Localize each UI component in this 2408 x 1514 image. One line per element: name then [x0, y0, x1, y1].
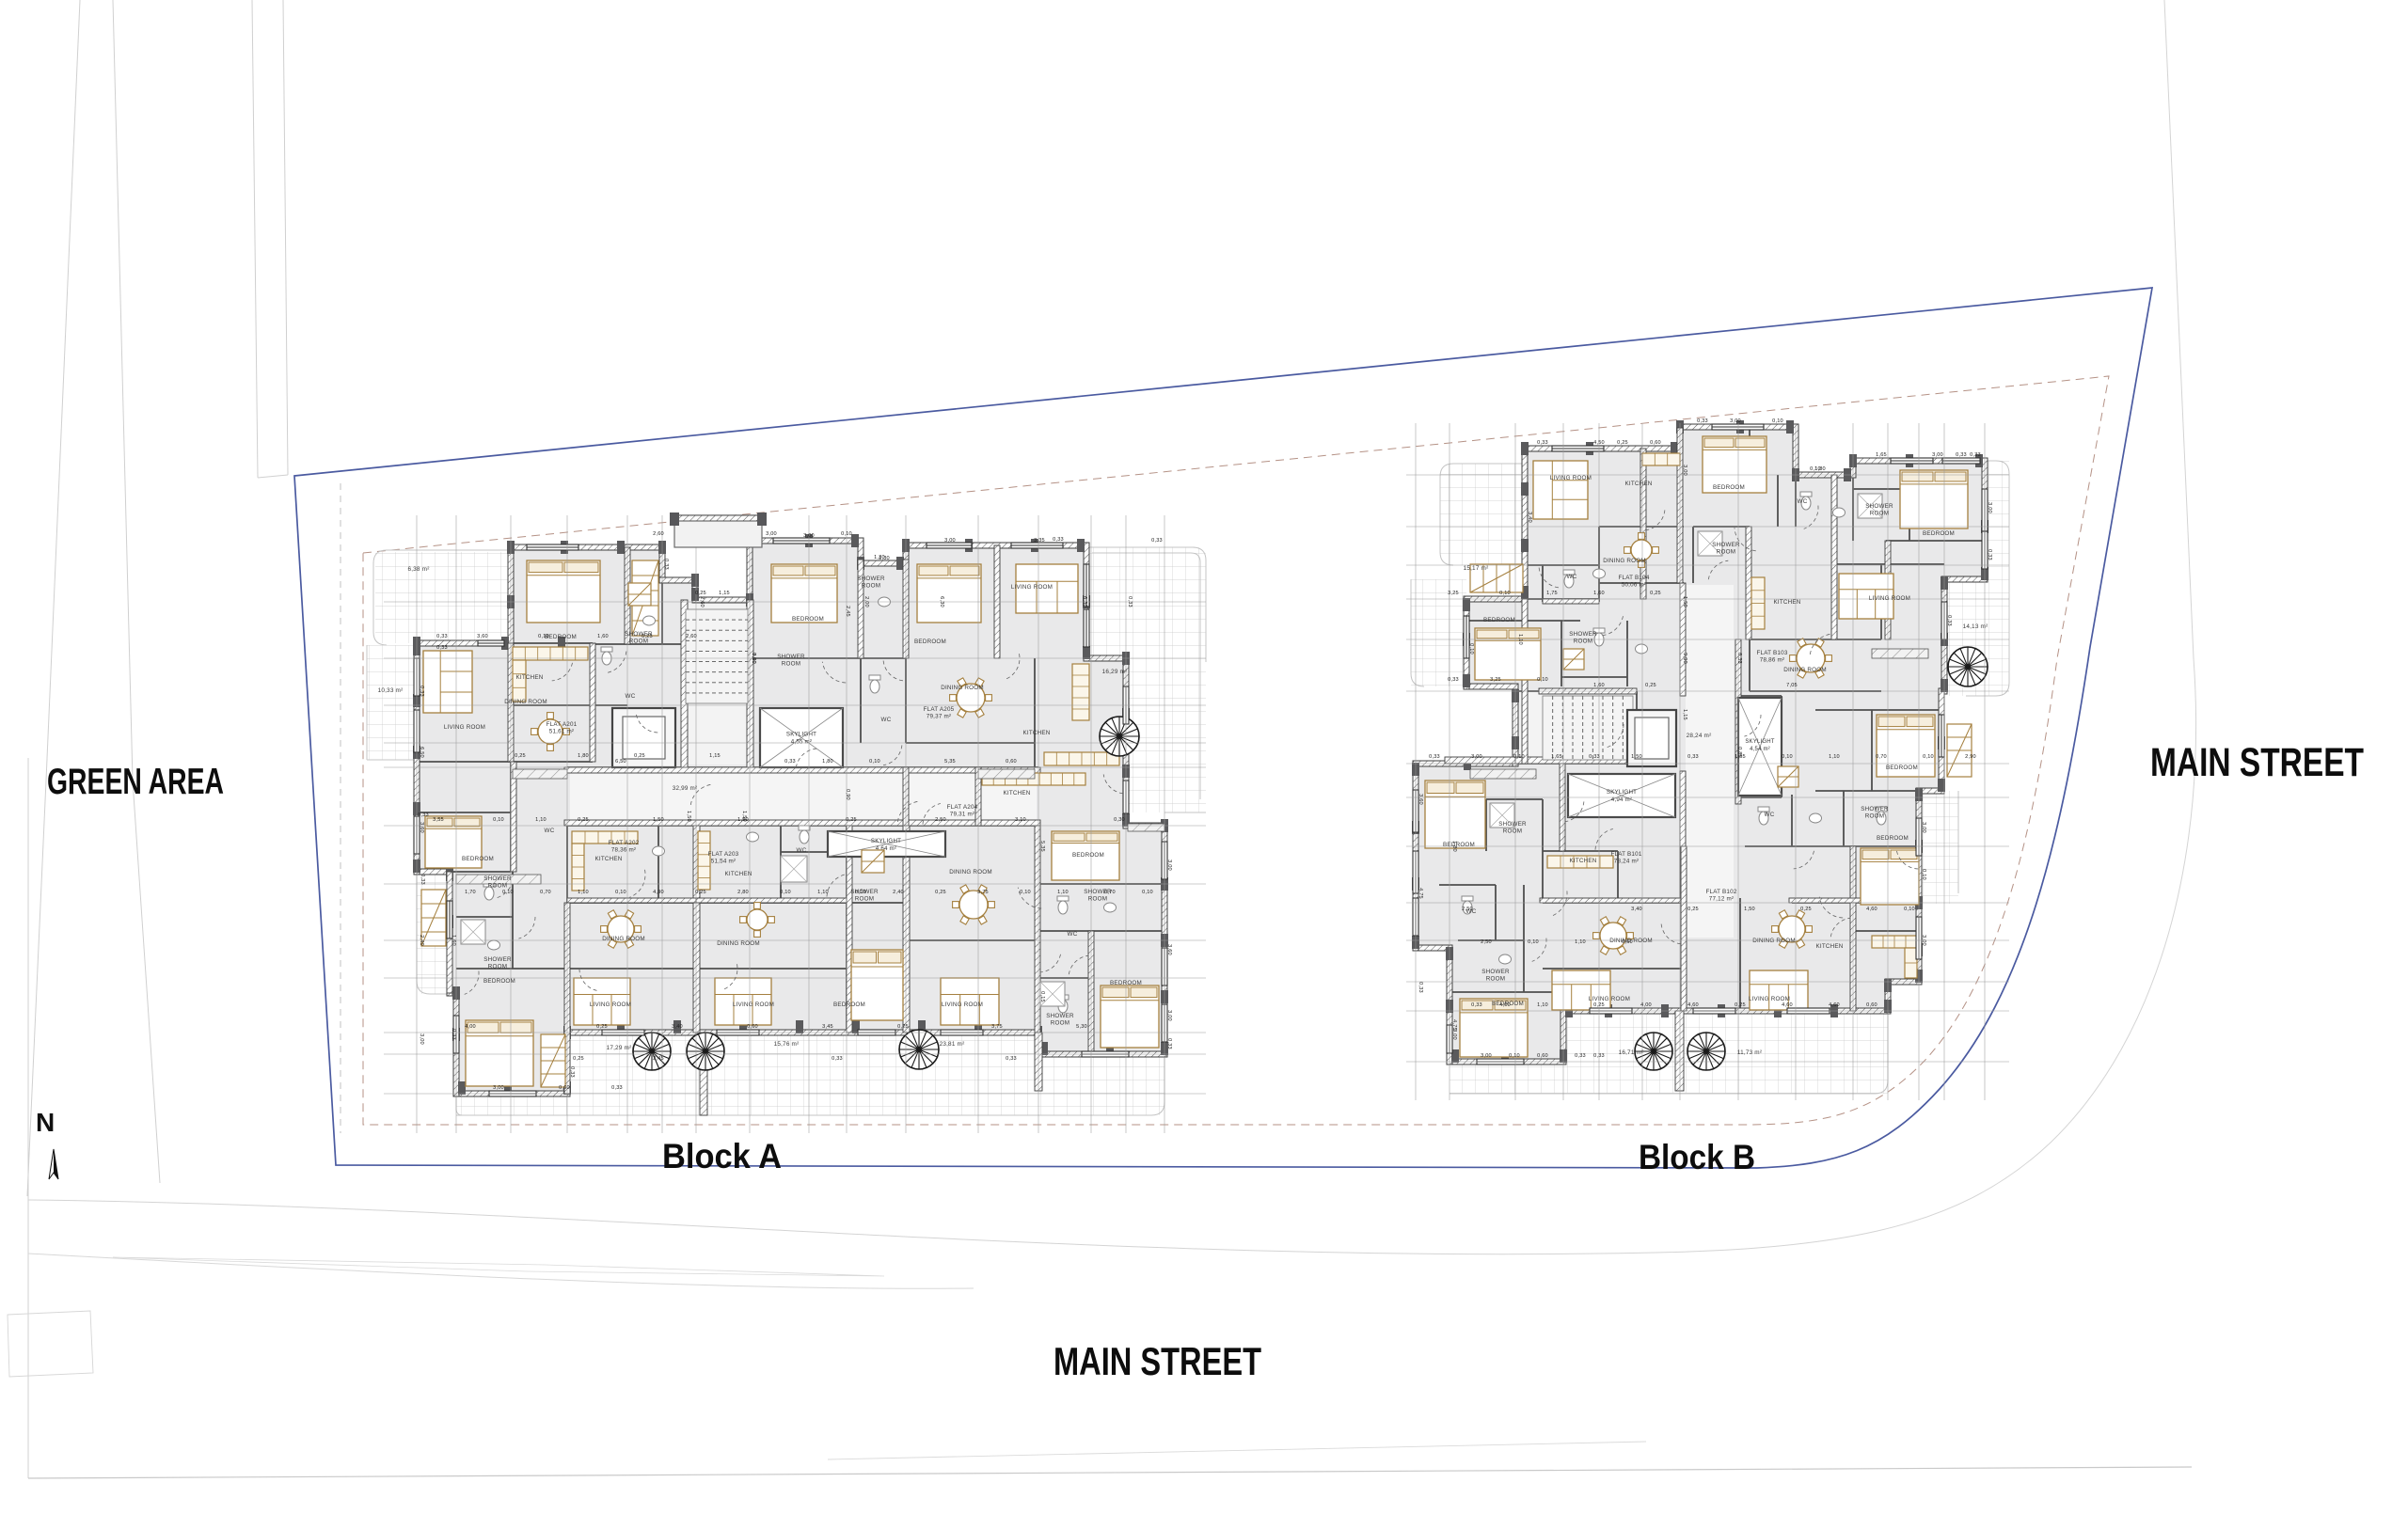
svg-text:0,10: 0,10 — [1468, 643, 1474, 654]
svg-text:0,25: 0,25 — [634, 753, 645, 759]
svg-text:6,50: 6,50 — [419, 747, 424, 758]
svg-text:DINING ROOM: DINING ROOM — [1752, 938, 1796, 944]
svg-text:0,33: 0,33 — [1151, 538, 1163, 544]
svg-text:79,37 m²: 79,37 m² — [927, 714, 951, 720]
svg-text:WC: WC — [1765, 812, 1775, 818]
svg-text:0,10: 0,10 — [1513, 754, 1525, 760]
svg-text:KITCHEN: KITCHEN — [1003, 790, 1030, 796]
svg-text:1,10: 1,10 — [1537, 1002, 1548, 1008]
svg-text:DINING ROOM: DINING ROOM — [1603, 558, 1646, 564]
svg-text:28,24 m²: 28,24 m² — [1687, 733, 1712, 739]
svg-text:KITCHEN: KITCHEN — [724, 871, 752, 877]
svg-text:LIVING ROOM: LIVING ROOM — [733, 1001, 774, 1008]
svg-text:LIVING ROOM: LIVING ROOM — [1749, 996, 1790, 1002]
svg-text:3,10: 3,10 — [1015, 817, 1026, 823]
svg-text:SHOWER: SHOWER — [777, 654, 805, 660]
svg-text:0,25: 0,25 — [573, 1056, 584, 1062]
svg-text:SHOWER: SHOWER — [857, 576, 885, 582]
svg-text:3,00: 3,00 — [1451, 1029, 1457, 1040]
svg-text:3,00: 3,00 — [803, 533, 815, 539]
svg-text:BEDROOM: BEDROOM — [1877, 835, 1909, 842]
svg-text:17,29 m²: 17,29 m² — [607, 1045, 632, 1051]
svg-text:1,50: 1,50 — [741, 811, 747, 822]
svg-text:0,33: 0,33 — [569, 1066, 575, 1078]
svg-text:DINING ROOM: DINING ROOM — [504, 699, 547, 705]
svg-text:KITCHEN: KITCHEN — [1773, 599, 1800, 606]
svg-text:ROOM: ROOM — [862, 583, 880, 590]
svg-text:0,25: 0,25 — [1593, 1002, 1605, 1008]
svg-text:1,50: 1,50 — [1682, 596, 1687, 607]
svg-text:0,33: 0,33 — [663, 559, 669, 570]
svg-text:4,60: 4,60 — [1829, 1002, 1840, 1008]
svg-text:BEDROOM: BEDROOM — [1110, 980, 1142, 986]
svg-text:0,10: 0,10 — [855, 890, 866, 895]
svg-text:0,33: 0,33 — [1166, 1038, 1172, 1049]
svg-text:2,60: 2,60 — [699, 596, 705, 607]
svg-text:ROOM: ROOM — [1088, 896, 1107, 903]
svg-text:LIVING ROOM: LIVING ROOM — [1550, 475, 1592, 481]
svg-text:5,30: 5,30 — [1076, 1024, 1087, 1030]
svg-text:0,10: 0,10 — [615, 890, 626, 895]
svg-text:Block A: Block A — [662, 1137, 782, 1175]
svg-text:SHOWER: SHOWER — [1569, 631, 1597, 638]
svg-text:0,60: 0,60 — [1537, 1053, 1548, 1059]
svg-text:2,40: 2,40 — [893, 890, 904, 895]
svg-text:2,80: 2,80 — [737, 890, 749, 895]
svg-text:3,00: 3,00 — [1921, 822, 1926, 833]
svg-text:2,40: 2,40 — [419, 935, 424, 946]
svg-text:0,25: 0,25 — [515, 753, 526, 759]
svg-text:6,30: 6,30 — [1082, 596, 1087, 607]
svg-text:3,40: 3,40 — [1631, 907, 1642, 912]
svg-text:0,70: 0,70 — [1876, 754, 1887, 760]
svg-text:BEDROOM: BEDROOM — [483, 978, 515, 985]
svg-text:11,73 m²: 11,73 m² — [1737, 1049, 1762, 1056]
svg-text:78,36 m²: 78,36 m² — [611, 847, 636, 854]
svg-text:4,90: 4,90 — [653, 890, 664, 895]
svg-text:1,70: 1,70 — [465, 890, 476, 895]
svg-text:2,50: 2,50 — [1462, 907, 1473, 912]
svg-text:0,33: 0,33 — [1697, 418, 1708, 424]
svg-text:SHOWER: SHOWER — [1046, 1013, 1074, 1019]
svg-text:51,61 m²: 51,61 m² — [549, 729, 574, 735]
svg-text:78,24 m²: 78,24 m² — [1614, 859, 1639, 865]
svg-text:SHOWER: SHOWER — [1481, 969, 1510, 975]
svg-text:2,00: 2,00 — [863, 596, 869, 607]
svg-text:0,33: 0,33 — [1987, 549, 1992, 560]
svg-text:3,60: 3,60 — [1418, 794, 1423, 805]
svg-text:0,10: 0,10 — [1509, 1053, 1520, 1059]
svg-text:MAIN STREET: MAIN STREET — [1053, 1339, 1261, 1383]
svg-text:MAIN STREET: MAIN STREET — [2150, 740, 2364, 785]
svg-text:WC: WC — [1798, 498, 1808, 505]
svg-text:FLAT B103: FLAT B103 — [1756, 650, 1787, 656]
svg-text:0,10: 0,10 — [841, 531, 852, 537]
svg-text:DINING ROOM: DINING ROOM — [941, 685, 984, 691]
svg-text:4,60: 4,60 — [1687, 1002, 1699, 1008]
svg-text:LIVING ROOM: LIVING ROOM — [1869, 595, 1910, 602]
svg-text:0,25: 0,25 — [1650, 591, 1661, 596]
svg-text:ROOM: ROOM — [1051, 1020, 1069, 1027]
svg-text:0,33: 0,33 — [436, 645, 448, 651]
svg-text:LIVING ROOM: LIVING ROOM — [1011, 584, 1053, 591]
svg-text:4,00: 4,00 — [465, 1024, 476, 1030]
svg-text:0,10: 0,10 — [1020, 890, 1031, 895]
svg-text:1,10: 1,10 — [578, 890, 589, 895]
svg-text:1,15: 1,15 — [1682, 709, 1687, 720]
svg-text:WC: WC — [881, 717, 892, 723]
svg-text:1,75: 1,75 — [1546, 591, 1558, 596]
svg-text:ROOM: ROOM — [855, 896, 874, 903]
svg-text:0,10: 0,10 — [869, 759, 880, 765]
svg-text:2,60: 2,60 — [653, 531, 664, 537]
svg-text:3,00: 3,00 — [1921, 935, 1926, 946]
svg-text:0,10: 0,10 — [1810, 466, 1821, 472]
svg-text:79,31 m²: 79,31 m² — [950, 812, 974, 818]
svg-text:ROOM: ROOM — [488, 883, 507, 890]
svg-text:0,33: 0,33 — [611, 1085, 623, 1091]
svg-text:1,80: 1,80 — [578, 753, 589, 759]
svg-text:4,00: 4,00 — [1640, 1002, 1652, 1008]
svg-text:SHOWER: SHOWER — [483, 875, 512, 882]
svg-text:4,50: 4,50 — [1593, 440, 1605, 446]
svg-text:3,00: 3,00 — [1481, 1053, 1492, 1059]
svg-text:0,25: 0,25 — [695, 890, 706, 895]
svg-text:3,45: 3,45 — [822, 1024, 833, 1030]
svg-text:ROOM: ROOM — [1503, 828, 1522, 835]
svg-text:3,40: 3,40 — [1527, 512, 1532, 523]
svg-text:0,25: 0,25 — [578, 817, 589, 823]
svg-text:0,33: 0,33 — [451, 1029, 456, 1040]
svg-text:0,60: 0,60 — [1650, 440, 1661, 446]
svg-text:1,10: 1,10 — [1575, 939, 1586, 945]
svg-text:2,45: 2,45 — [653, 1056, 664, 1062]
svg-text:LIVING ROOM: LIVING ROOM — [444, 724, 485, 731]
svg-text:3,00: 3,00 — [1730, 418, 1741, 424]
svg-text:1,50: 1,50 — [653, 817, 664, 823]
svg-text:BEDROOM: BEDROOM — [1072, 852, 1104, 859]
svg-text:ROOM: ROOM — [1870, 511, 1889, 517]
svg-text:0,33: 0,33 — [1589, 754, 1600, 760]
svg-text:1,60: 1,60 — [1593, 591, 1605, 596]
svg-text:SHOWER: SHOWER — [1712, 542, 1740, 548]
svg-text:1,10: 1,10 — [1829, 754, 1840, 760]
svg-text:10,33 m²: 10,33 m² — [378, 687, 404, 694]
svg-text:0,10: 0,10 — [493, 817, 504, 823]
svg-text:16,71 m²: 16,71 m² — [1619, 1049, 1644, 1056]
svg-text:4,54 m²: 4,54 m² — [1750, 747, 1770, 752]
svg-text:0,30: 0,30 — [1114, 817, 1125, 823]
svg-text:FLAT A201: FLAT A201 — [547, 721, 578, 728]
svg-text:9,90: 9,90 — [1682, 653, 1687, 664]
svg-text:51,54 m²: 51,54 m² — [711, 859, 736, 865]
svg-text:0,10: 0,10 — [1528, 939, 1539, 945]
svg-text:0,33: 0,33 — [1537, 440, 1548, 446]
svg-text:6,38 m²: 6,38 m² — [407, 566, 429, 573]
svg-text:1,10: 1,10 — [817, 890, 829, 895]
svg-text:SHOWER: SHOWER — [1861, 806, 1889, 812]
svg-text:0,25: 0,25 — [935, 890, 946, 895]
svg-text:1,65: 1,65 — [1876, 452, 1887, 458]
svg-text:1,15: 1,15 — [719, 591, 730, 596]
svg-text:0,10: 0,10 — [1772, 418, 1783, 424]
svg-text:ROOM: ROOM — [1574, 639, 1592, 645]
svg-text:LIVING ROOM: LIVING ROOM — [942, 1001, 983, 1008]
svg-text:KITCHEN: KITCHEN — [1569, 858, 1596, 864]
svg-text:0,33: 0,33 — [1471, 1002, 1482, 1008]
svg-text:0,33: 0,33 — [1956, 452, 1967, 458]
svg-text:SHOWER: SHOWER — [1865, 503, 1893, 510]
svg-text:0,85: 0,85 — [1736, 747, 1742, 758]
svg-text:3,75: 3,75 — [991, 1024, 1003, 1030]
svg-text:1,80: 1,80 — [822, 759, 833, 765]
svg-text:BEDROOM: BEDROOM — [462, 856, 494, 862]
svg-text:3,60: 3,60 — [419, 822, 424, 833]
svg-text:0,60: 0,60 — [559, 1085, 570, 1091]
svg-text:0,25: 0,25 — [897, 1024, 909, 1030]
svg-text:4,00: 4,00 — [1499, 1002, 1511, 1008]
svg-text:1,50: 1,50 — [1744, 907, 1755, 912]
svg-text:3,25: 3,25 — [1490, 677, 1501, 683]
svg-text:Block B: Block B — [1639, 1138, 1755, 1176]
svg-text:0,60: 0,60 — [747, 1024, 758, 1030]
svg-text:0,15: 0,15 — [1039, 991, 1045, 1002]
svg-text:BEDROOM: BEDROOM — [792, 616, 824, 623]
svg-text:SKYLIGHT: SKYLIGHT — [871, 838, 901, 844]
svg-text:0,33: 0,33 — [784, 759, 796, 765]
svg-text:0,10: 0,10 — [1921, 869, 1926, 880]
svg-text:0,10: 0,10 — [1142, 890, 1153, 895]
svg-text:0,33: 0,33 — [418, 812, 429, 818]
svg-text:78,86 m²: 78,86 m² — [1760, 657, 1784, 664]
svg-text:0,60: 0,60 — [1866, 1002, 1877, 1008]
svg-text:0,33: 0,33 — [1593, 1053, 1605, 1059]
svg-text:2,50: 2,50 — [1481, 939, 1492, 945]
svg-text:2,50: 2,50 — [935, 817, 946, 823]
svg-text:23,81 m²: 23,81 m² — [940, 1041, 965, 1048]
svg-text:WC: WC — [1068, 931, 1078, 938]
svg-text:BEDROOM: BEDROOM — [1923, 530, 1955, 537]
svg-text:0,60: 0,60 — [1006, 759, 1017, 765]
svg-text:77,12 m²: 77,12 m² — [1709, 896, 1734, 903]
svg-text:0,10: 0,10 — [1782, 754, 1793, 760]
svg-text:0,33: 0,33 — [1429, 754, 1440, 760]
svg-text:3,00: 3,00 — [1471, 754, 1482, 760]
svg-text:5,35: 5,35 — [1039, 841, 1045, 852]
svg-text:KITCHEN: KITCHEN — [1022, 730, 1050, 736]
svg-text:BEDROOM: BEDROOM — [1483, 617, 1515, 623]
svg-text:FLAT B104: FLAT B104 — [1618, 575, 1649, 581]
svg-text:0,10: 0,10 — [538, 634, 549, 639]
svg-text:FLAT B102: FLAT B102 — [1705, 889, 1736, 895]
svg-text:SKYLIGHT: SKYLIGHT — [1745, 739, 1774, 745]
svg-text:1,10: 1,10 — [1057, 890, 1069, 895]
svg-text:WC: WC — [545, 828, 555, 834]
svg-text:WC: WC — [1567, 574, 1577, 580]
svg-text:BEDROOM: BEDROOM — [914, 639, 946, 645]
svg-text:0,33: 0,33 — [1006, 1056, 1017, 1062]
svg-text:BEDROOM: BEDROOM — [1713, 484, 1745, 491]
svg-text:3,00: 3,00 — [944, 538, 956, 544]
svg-text:DINING ROOM: DINING ROOM — [717, 940, 760, 947]
svg-text:0,25: 0,25 — [695, 591, 706, 596]
svg-text:3,00: 3,00 — [1932, 452, 1943, 458]
svg-text:3,55: 3,55 — [433, 817, 444, 823]
svg-text:0,25: 0,25 — [1687, 907, 1699, 912]
svg-text:DINING ROOM: DINING ROOM — [949, 869, 992, 875]
svg-text:3,00: 3,00 — [1166, 860, 1172, 871]
svg-text:N: N — [36, 1108, 55, 1137]
svg-text:32,99 m²: 32,99 m² — [673, 785, 697, 792]
svg-text:3,35: 3,35 — [1034, 538, 1045, 544]
svg-text:4,60: 4,60 — [1866, 907, 1877, 912]
svg-text:SHOWER: SHOWER — [1498, 821, 1527, 828]
svg-text:50,06 m²: 50,06 m² — [1622, 582, 1646, 589]
svg-text:0,25: 0,25 — [642, 634, 653, 639]
svg-text:0,90: 0,90 — [845, 789, 850, 800]
svg-text:1,10: 1,10 — [535, 817, 547, 823]
svg-text:0,33: 0,33 — [436, 634, 448, 639]
svg-text:0,25: 0,25 — [1645, 683, 1656, 688]
svg-text:5,35: 5,35 — [944, 759, 956, 765]
svg-text:3,00: 3,00 — [493, 1085, 504, 1091]
svg-text:ROOM: ROOM — [1865, 813, 1884, 820]
svg-text:1,30: 1,30 — [874, 555, 885, 560]
svg-text:FLAT A205: FLAT A205 — [924, 706, 955, 713]
svg-text:FLAT A202: FLAT A202 — [609, 840, 640, 846]
svg-text:0,60: 0,60 — [1622, 939, 1633, 945]
svg-text:KITCHEN: KITCHEN — [594, 856, 622, 862]
svg-text:15,17 m²: 15,17 m² — [1464, 565, 1489, 572]
svg-text:1,15: 1,15 — [709, 753, 721, 759]
svg-text:6,30: 6,30 — [939, 596, 944, 607]
svg-text:3,00: 3,00 — [1987, 502, 1992, 513]
svg-text:0,25: 0,25 — [846, 817, 857, 823]
svg-text:3,00: 3,00 — [766, 531, 777, 537]
svg-text:0,10: 0,10 — [1537, 677, 1548, 683]
svg-text:KITCHEN: KITCHEN — [1624, 481, 1652, 487]
svg-text:0,33: 0,33 — [1053, 537, 1064, 543]
svg-text:1,10: 1,10 — [1517, 634, 1523, 645]
svg-text:3,25: 3,25 — [1448, 591, 1459, 596]
svg-text:1,60: 1,60 — [451, 935, 456, 946]
svg-text:1,80: 1,80 — [1451, 841, 1457, 852]
svg-text:0,25: 0,25 — [1735, 1002, 1746, 1008]
svg-text:4,75: 4,75 — [1451, 1019, 1457, 1031]
svg-text:KITCHEN: KITCHEN — [1815, 943, 1843, 950]
svg-text:2,60: 2,60 — [686, 634, 697, 639]
svg-text:14,13 m²: 14,13 m² — [1963, 623, 1988, 630]
svg-text:BEDROOM: BEDROOM — [833, 1001, 865, 1008]
svg-text:1,65: 1,65 — [1551, 754, 1562, 760]
svg-text:0,25: 0,25 — [1800, 907, 1812, 912]
svg-text:FLAT A203: FLAT A203 — [708, 851, 739, 858]
svg-text:0,10: 0,10 — [780, 890, 791, 895]
svg-text:BEDROOM: BEDROOM — [1443, 842, 1475, 848]
svg-text:1,60: 1,60 — [597, 634, 609, 639]
svg-text:LIVING ROOM: LIVING ROOM — [1589, 996, 1630, 1002]
svg-text:0,70: 0,70 — [540, 890, 551, 895]
svg-text:0,33: 0,33 — [1736, 653, 1742, 664]
svg-text:ROOM: ROOM — [1486, 976, 1505, 983]
svg-text:3,00: 3,00 — [1682, 465, 1687, 476]
svg-text:0,33: 0,33 — [1418, 982, 1423, 993]
svg-text:15,76 m²: 15,76 m² — [774, 1041, 800, 1048]
svg-text:16,29 m²: 16,29 m² — [1102, 669, 1128, 675]
svg-text:2,45: 2,45 — [845, 606, 850, 617]
svg-text:SHOWER: SHOWER — [483, 956, 512, 963]
svg-text:2,90: 2,90 — [1965, 754, 1976, 760]
svg-text:DINING ROOM: DINING ROOM — [602, 936, 645, 942]
svg-text:ROOM: ROOM — [782, 661, 800, 668]
svg-text:0,10: 0,10 — [1499, 591, 1511, 596]
svg-text:3,60: 3,60 — [477, 634, 488, 639]
svg-text:3,00: 3,00 — [1166, 1010, 1172, 1021]
svg-text:FLAT A204: FLAT A204 — [947, 804, 978, 811]
svg-text:0,33: 0,33 — [1448, 677, 1459, 683]
svg-text:SKYLIGHT: SKYLIGHT — [786, 732, 816, 738]
svg-text:0,70: 0,70 — [1104, 890, 1116, 895]
svg-text:ROOM: ROOM — [1717, 549, 1735, 556]
svg-text:FLAT B101: FLAT B101 — [1610, 851, 1641, 858]
svg-text:0,25: 0,25 — [1617, 440, 1628, 446]
svg-text:BEDROOM: BEDROOM — [545, 634, 577, 640]
svg-text:3,00: 3,00 — [419, 1033, 424, 1045]
svg-text:0,33: 0,33 — [419, 686, 424, 697]
svg-text:0,10: 0,10 — [1904, 907, 1915, 912]
svg-text:0,33: 0,33 — [1575, 1053, 1586, 1059]
svg-text:0,10: 0,10 — [502, 890, 514, 895]
svg-text:0,33: 0,33 — [1127, 596, 1133, 607]
svg-text:3,75: 3,75 — [977, 890, 989, 895]
svg-text:0,10: 0,10 — [1923, 754, 1934, 760]
svg-text:ROOM: ROOM — [488, 964, 507, 970]
svg-text:BEDROOM: BEDROOM — [1886, 765, 1918, 771]
svg-text:0,33: 0,33 — [832, 1056, 843, 1062]
svg-text:4,75: 4,75 — [1418, 888, 1423, 899]
svg-text:GREEN AREA: GREEN AREA — [47, 762, 224, 802]
svg-text:WC: WC — [626, 693, 636, 700]
svg-text:1,50: 1,50 — [1631, 754, 1642, 760]
svg-text:0,33: 0,33 — [1687, 754, 1699, 760]
svg-text:DINING ROOM: DINING ROOM — [1783, 667, 1827, 673]
svg-text:WC: WC — [797, 847, 807, 854]
svg-text:0,33: 0,33 — [1970, 452, 1981, 458]
svg-text:0,33: 0,33 — [1946, 615, 1952, 626]
svg-text:0,25: 0,25 — [596, 1024, 608, 1030]
svg-text:7,05: 7,05 — [1786, 683, 1798, 688]
svg-text:3,40: 3,40 — [672, 1024, 683, 1030]
svg-text:3,60: 3,60 — [1166, 944, 1172, 955]
svg-text:4,60: 4,60 — [1782, 1002, 1793, 1008]
svg-text:1,50: 1,50 — [686, 811, 691, 822]
svg-text:6,50: 6,50 — [615, 759, 626, 765]
svg-text:SKYLIGHT: SKYLIGHT — [1607, 789, 1637, 796]
svg-text:1,60: 1,60 — [1593, 683, 1605, 688]
svg-text:0,33: 0,33 — [420, 874, 425, 885]
svg-text:KITCHEN: KITCHEN — [515, 674, 543, 681]
svg-text:LIVING ROOM: LIVING ROOM — [590, 1001, 631, 1008]
svg-text:3,60: 3,60 — [751, 653, 756, 664]
